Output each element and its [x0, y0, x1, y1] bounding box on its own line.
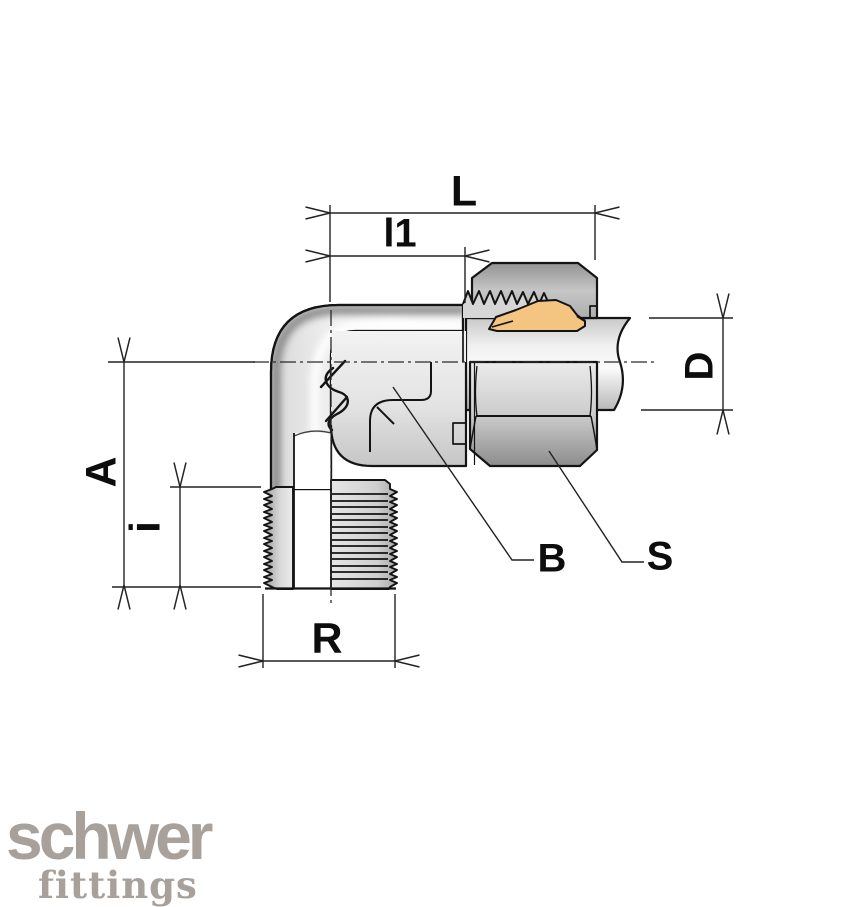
- fitting-body-group: [264, 263, 630, 589]
- elbow-fitting-technical-drawing: [0, 0, 850, 907]
- schwer-fittings-logo: schwer fittings: [6, 806, 209, 904]
- male-thread-left-wall: [264, 487, 293, 589]
- union-nut-hex: [470, 362, 597, 466]
- dim-label-D: D: [678, 352, 723, 381]
- fitting-drawing-page: L l1 A i R D B S schwer fittings: [0, 0, 850, 907]
- logo-subtitle-text: fittings: [38, 867, 209, 904]
- logo-brand-text: schwer: [6, 806, 209, 867]
- dim-label-R: R: [311, 615, 342, 664]
- callout-label-B: B: [538, 537, 567, 582]
- callout-label-S: S: [647, 535, 674, 580]
- dim-label-L: L: [451, 168, 477, 217]
- dim-label-A: A: [78, 456, 127, 487]
- dim-label-l1: l1: [383, 212, 416, 257]
- dim-label-i: i: [122, 521, 171, 533]
